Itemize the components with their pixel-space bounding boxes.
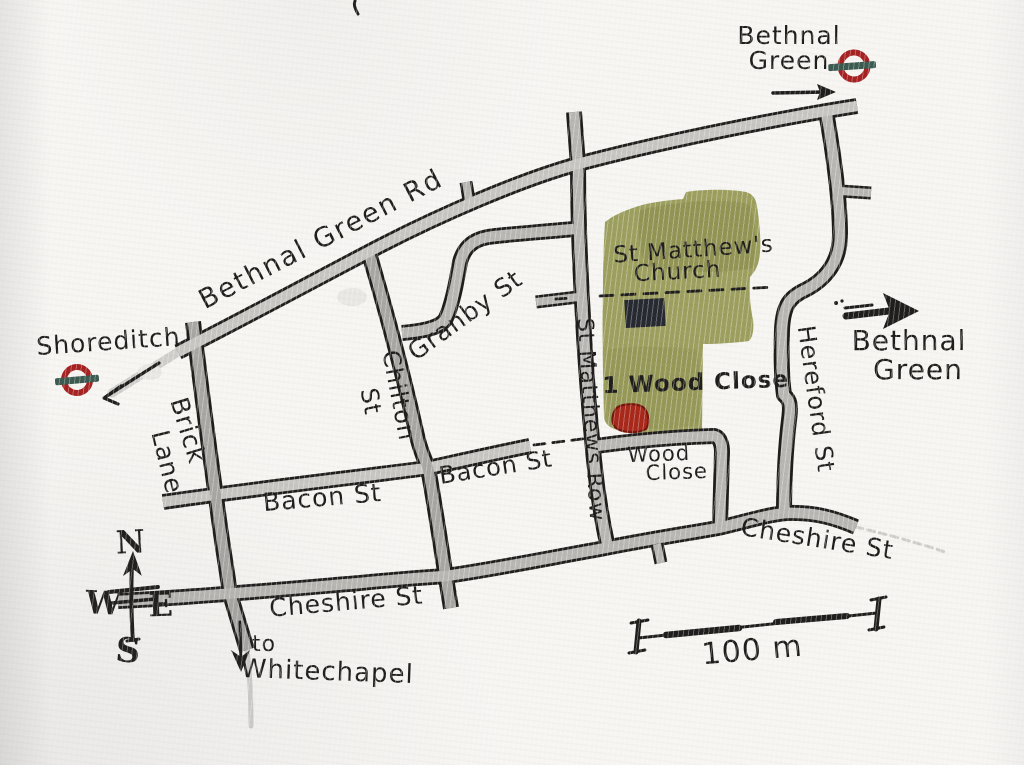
watercolour-smudge: [337, 288, 367, 306]
granby-st-label: Granby St: [402, 264, 528, 366]
bethnal-station-arrow-shaft: [773, 92, 826, 93]
bethnal-green-east-label-line2: Green: [873, 353, 963, 386]
address-label: 1 Wood Close: [602, 367, 789, 399]
stray-ink-mark: [354, 1, 358, 14]
to-whitechapel-label-line1: to: [252, 632, 276, 657]
wood-close-label-line2: Close: [645, 459, 708, 485]
compass-e-label: E: [148, 586, 174, 625]
hereford-st-label: Hereford St: [792, 324, 840, 474]
scale-label: 100 m: [700, 629, 804, 673]
bethnal-green-station-label-line2: Green: [749, 46, 830, 75]
scale-bar-right-cap: [876, 599, 879, 629]
shoreditch-roundel-icon: [54, 365, 100, 395]
hand-drawn-map: N W E S 100 m Bethnal Green Rd Shoreditc…: [0, 0, 1024, 765]
bethnal-east-arrow-shaft: [846, 311, 889, 316]
arrow-ink-dot: [834, 301, 838, 305]
cheshire-stub-fill: [657, 544, 661, 563]
church-label-line2: Church: [633, 257, 722, 288]
arrow-ink-dot: [840, 299, 843, 302]
map-canvas: N W E S 100 m Bethnal Green Rd Shoreditc…: [0, 0, 1024, 765]
bethnal-east-arrow-stroke: [845, 305, 872, 308]
chilton-st-label-line2: St: [355, 386, 388, 418]
scale-bar-left-cap: [636, 621, 639, 652]
shoreditch-station-label: Shoreditch: [35, 322, 181, 361]
compass-w-label: W: [84, 583, 124, 623]
bethnal-green-roundel-icon: [827, 51, 877, 81]
compass-n-label: N: [115, 522, 146, 561]
scale-bar-thick-segment: [666, 628, 739, 635]
scale-bar-thick-segment: [776, 616, 847, 622]
roundel-bar: [55, 375, 99, 386]
to-whitechapel-label-line2: Whitechapel: [240, 654, 414, 690]
scale-bar: 100 m: [629, 597, 886, 672]
address-marker: [612, 404, 648, 432]
church-building: [624, 298, 665, 328]
hereford-stub-fill: [840, 191, 871, 193]
watercolour-smudge: [138, 364, 162, 380]
compass-s-label: S: [114, 630, 142, 672]
